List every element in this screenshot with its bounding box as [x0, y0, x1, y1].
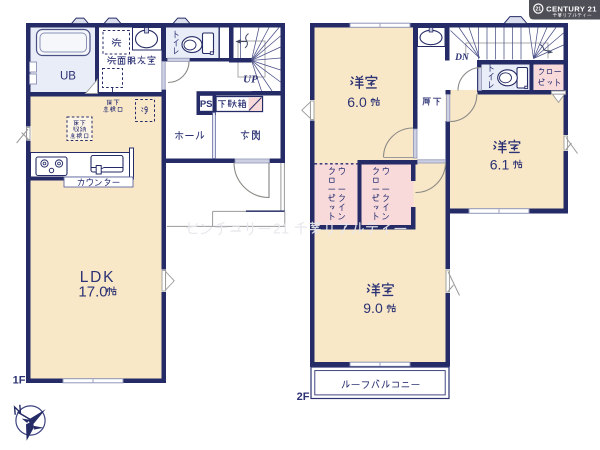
svg-text:21: 21 [273, 222, 289, 238]
svg-text:21: 21 [536, 6, 542, 12]
svg-text:UP: UP [243, 74, 258, 86]
svg-text:6.1: 6.1 [490, 157, 510, 173]
svg-text:UB: UB [60, 71, 76, 83]
svg-text:1F: 1F [13, 375, 26, 387]
svg-text:PS: PS [200, 99, 213, 110]
svg-text:DN: DN [454, 53, 470, 63]
svg-text:6.0: 6.0 [347, 94, 367, 110]
svg-text:2F: 2F [297, 391, 310, 403]
svg-text:CENTURY 21: CENTURY 21 [546, 4, 597, 13]
svg-text:9.0: 9.0 [363, 300, 383, 316]
svg-text:17.0: 17.0 [78, 284, 107, 301]
